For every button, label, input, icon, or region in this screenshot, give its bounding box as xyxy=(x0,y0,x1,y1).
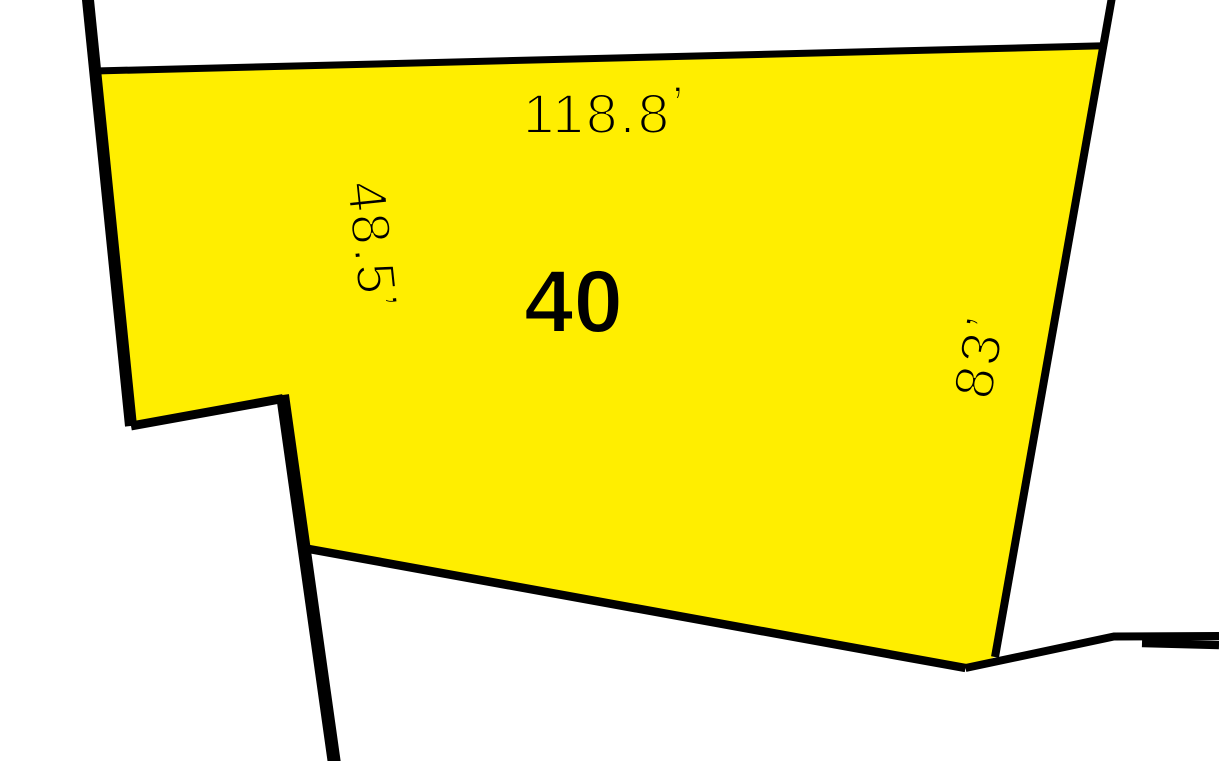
svg-text:118.8’: 118.8’ xyxy=(523,74,686,145)
svg-text:40: 40 xyxy=(524,251,623,351)
